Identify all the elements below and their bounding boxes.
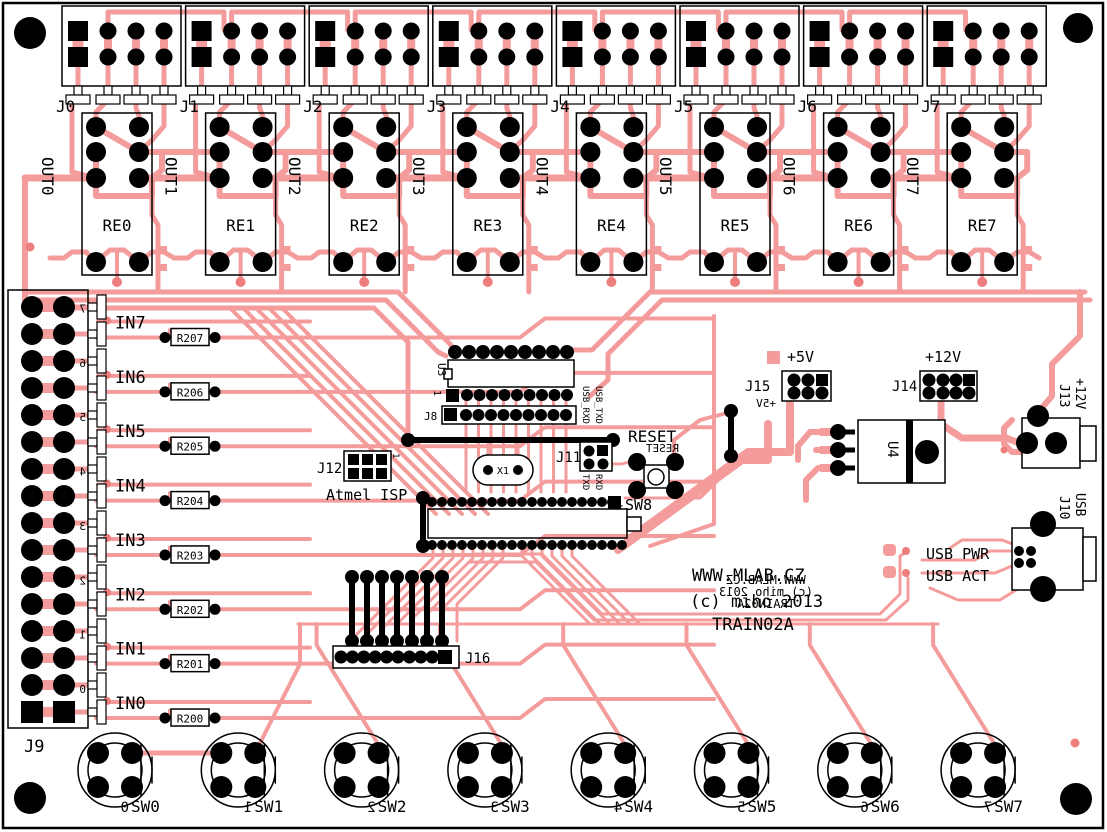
round-pad	[223, 23, 240, 40]
terminal-symbol	[97, 511, 106, 535]
switch-digit-mirrored: 6	[860, 800, 868, 816]
terminal-symbol	[124, 95, 148, 104]
resistor-label: R203	[177, 549, 204, 562]
terminal-symbol	[531, 86, 539, 95]
terminal-symbol	[97, 700, 106, 724]
j9-pad	[21, 323, 43, 345]
terminal-symbol	[495, 95, 519, 104]
square-pad	[68, 21, 88, 41]
resistor-pad	[160, 386, 171, 397]
terminal-symbol	[846, 86, 854, 95]
j10-shell-pad	[1030, 576, 1056, 602]
round-pad	[347, 49, 364, 66]
terminal-symbol	[997, 86, 1005, 95]
j13-pad	[1045, 432, 1067, 454]
socket-pad	[467, 497, 477, 507]
square-pad	[562, 21, 582, 41]
u3-top-pad	[448, 345, 462, 359]
input-label: IN0	[115, 694, 146, 714]
terminal-symbol	[523, 95, 547, 104]
j-connector-label: J7	[921, 97, 940, 116]
j10-pad	[1014, 558, 1024, 568]
terminal-symbol	[132, 86, 140, 95]
round-pad	[965, 49, 982, 66]
terminal-symbol	[248, 95, 272, 104]
terminal-symbol	[256, 86, 264, 95]
rxd-label: RXD	[593, 474, 603, 490]
terminal-symbol	[160, 86, 168, 95]
j-connector-label: J5	[674, 97, 693, 116]
relay-pad	[623, 117, 643, 137]
socket-pad	[577, 497, 587, 507]
terminal-symbol	[88, 573, 97, 581]
j9-pad	[21, 566, 43, 588]
terminal-symbol	[152, 95, 176, 104]
j14-pad	[937, 387, 950, 400]
j14-pad	[963, 387, 976, 400]
u4-pad	[830, 460, 846, 476]
u4-pad	[830, 442, 846, 458]
j16-pad	[335, 651, 348, 664]
round-pad	[526, 49, 543, 66]
square-pad	[315, 47, 335, 67]
terminal-symbol	[770, 95, 794, 104]
round-pad	[622, 23, 639, 40]
relay-pad	[951, 168, 971, 188]
relay-pad	[86, 142, 106, 162]
switch-label: SW4	[624, 797, 653, 816]
terminal-symbol	[88, 465, 97, 473]
copper-trace	[399, 196, 405, 292]
socket-pad	[487, 497, 497, 507]
terminal-symbol	[379, 86, 387, 95]
j-connector-label: J3	[427, 97, 446, 116]
terminal-symbol	[969, 86, 977, 95]
relay-label: RE0	[103, 216, 132, 235]
titleblock-url: WWW.MLAB.CZ	[692, 566, 805, 586]
relay-pad	[210, 117, 230, 137]
x1-label: X1	[497, 466, 509, 477]
relay-pad	[333, 168, 353, 188]
relay-pad	[994, 142, 1014, 162]
terminal-symbol	[220, 95, 244, 104]
terminal-symbol	[97, 646, 106, 670]
wire-link-pad	[401, 433, 415, 447]
relay-pad	[828, 252, 848, 272]
j-connector-label: J0	[56, 97, 75, 116]
resistor-pad	[160, 441, 171, 452]
j8-pad	[473, 409, 485, 421]
round-pad	[347, 23, 364, 40]
relay-pad	[623, 142, 643, 162]
j15-pad	[816, 387, 829, 400]
terminal-symbol	[97, 457, 106, 481]
socket-pad	[567, 540, 577, 550]
relay-pad	[333, 142, 353, 162]
socket-pad	[607, 540, 617, 550]
resistor-label: R202	[177, 604, 204, 617]
smd-pad	[281, 264, 291, 271]
terminal-symbol	[321, 86, 329, 95]
square-pad	[439, 21, 459, 41]
u3-pin-pad	[524, 389, 536, 401]
relay-pad	[129, 168, 149, 188]
reset-pad	[666, 453, 684, 471]
j16-pad	[414, 651, 427, 664]
j10-pad	[1014, 546, 1024, 556]
terminal-symbol	[97, 295, 106, 319]
j9-pad	[21, 674, 43, 696]
terminal-symbol	[88, 330, 97, 338]
crystal-pad	[483, 465, 493, 475]
terminal-symbol	[902, 86, 910, 95]
socket-pad	[427, 540, 437, 550]
round-pad	[470, 23, 487, 40]
relay-pad	[253, 117, 273, 137]
j-connector-label: J1	[180, 97, 199, 116]
terminal-symbol	[228, 86, 236, 95]
relay-pad	[210, 168, 230, 188]
terminal-symbol	[503, 86, 511, 95]
resistor-pad	[210, 495, 221, 506]
relay-pad	[704, 142, 724, 162]
terminal-symbol	[88, 411, 97, 419]
j13-rail-label: +12V	[1072, 378, 1087, 409]
terminal-symbol	[778, 86, 786, 95]
input-label: IN4	[115, 477, 146, 497]
copper-trace	[674, 412, 731, 461]
via	[236, 277, 246, 287]
mounting-hole	[14, 17, 46, 49]
relay-label: RE3	[473, 216, 502, 235]
u4-pad	[830, 424, 846, 440]
input-label: IN2	[115, 585, 146, 605]
round-pad	[594, 23, 611, 40]
smd-pad	[157, 264, 167, 271]
j9-pad	[53, 404, 75, 426]
round-pad	[746, 23, 763, 40]
resistor-label: R205	[177, 441, 204, 454]
resistor-pad	[160, 713, 171, 724]
relay-pad	[951, 142, 971, 162]
u3-pin-pad	[511, 389, 523, 401]
j-connector-label: J6	[798, 97, 817, 116]
round-pad	[526, 23, 543, 40]
j8-pad	[548, 409, 560, 421]
j9-pad	[53, 593, 75, 615]
mounting-hole	[1063, 13, 1093, 43]
j10-shell-pad	[1030, 511, 1056, 537]
square-pad	[686, 47, 706, 67]
round-pad	[965, 23, 982, 40]
round-pad	[251, 23, 268, 40]
socket-pad	[437, 540, 447, 550]
copper-trace	[367, 550, 443, 641]
switch-label: SW5	[748, 797, 777, 816]
terminal-symbol	[692, 86, 700, 95]
relay-pad	[828, 117, 848, 137]
switch-digit-mirrored: 3	[490, 800, 498, 816]
resistor-pad	[210, 658, 221, 669]
square-pad	[53, 701, 75, 723]
socket-pad	[507, 497, 517, 507]
j13-pad	[1027, 405, 1049, 427]
round-pad	[897, 23, 914, 40]
j9-pad	[21, 512, 43, 534]
j14-pad	[923, 374, 936, 387]
copper-trace	[258, 624, 300, 753]
switch-inner-outline	[828, 743, 882, 797]
j8-pad	[460, 409, 472, 421]
j11-pad	[598, 459, 609, 470]
terminal-symbol	[866, 95, 890, 104]
square-pad	[562, 47, 582, 67]
terminal-symbol	[475, 86, 483, 95]
terminal-symbol	[88, 519, 97, 527]
round-pad	[869, 49, 886, 66]
channel-digit-mirrored: 2	[79, 574, 86, 587]
terminal-symbol	[646, 95, 670, 104]
copper-trace	[1017, 196, 1023, 292]
square-pad	[810, 21, 830, 41]
j9-pad	[53, 512, 75, 534]
j12-pad	[348, 454, 359, 465]
u3-pin-pad	[499, 389, 511, 401]
terminal-symbol	[88, 492, 97, 500]
terminal-symbol	[714, 95, 738, 104]
relay-pad	[376, 117, 396, 137]
switch-label: SW3	[501, 797, 530, 816]
resistor-label: R201	[177, 658, 204, 671]
copper-trace	[152, 196, 158, 292]
j16-label: J16	[465, 651, 490, 667]
u3-pin-pad	[561, 389, 573, 401]
resistor-pad	[160, 658, 171, 669]
smd-pad	[651, 264, 661, 271]
relay-pad	[86, 168, 106, 188]
smd-pad	[528, 246, 538, 253]
j15-pad	[788, 387, 801, 400]
switch-digit-mirrored: 1	[244, 800, 252, 816]
socket-pad	[527, 540, 537, 550]
j8-pad	[498, 409, 510, 421]
terminal-symbol	[407, 86, 415, 95]
terminal-symbol	[96, 95, 120, 104]
switch-inner-outline	[211, 743, 265, 797]
input-label: IN5	[115, 422, 146, 442]
square-pad	[439, 47, 459, 67]
channel-digit-mirrored: 4	[79, 466, 86, 479]
relay-pad	[457, 168, 477, 188]
relay-pad	[580, 142, 600, 162]
relay-pad	[129, 142, 149, 162]
relay-pad	[704, 252, 724, 272]
relay-pad	[457, 142, 477, 162]
relay-pad	[500, 142, 520, 162]
terminal-symbol	[88, 303, 97, 311]
square-pad	[438, 650, 452, 664]
terminal-symbol	[284, 86, 292, 95]
socket-pad	[457, 497, 467, 507]
terminal-symbol	[88, 546, 97, 554]
relay-label: RE1	[226, 216, 255, 235]
j16-pad	[403, 651, 416, 664]
j9-pad	[21, 377, 43, 399]
j16-pad	[346, 651, 359, 664]
out-label: OUT7	[903, 157, 922, 196]
terminal-symbol	[97, 592, 106, 616]
u3-top-pad	[532, 345, 546, 359]
relay-pad	[86, 252, 106, 272]
smd-pad	[281, 246, 291, 253]
j16-pad	[380, 651, 393, 664]
channel-digit-mirrored: 5	[79, 411, 86, 424]
input-label: IN3	[115, 531, 146, 551]
switch-inner-outline	[705, 743, 759, 797]
relay-pad	[333, 252, 353, 272]
copper-trace	[590, 300, 1090, 396]
socket-pad	[597, 497, 607, 507]
square-pad	[963, 374, 975, 386]
via	[1071, 739, 1080, 748]
terminal-symbol	[626, 86, 634, 95]
out-label: OUT0	[38, 157, 57, 196]
round-pad	[746, 49, 763, 66]
relay-pad	[747, 168, 767, 188]
terminal-symbol	[445, 86, 453, 95]
smd-pad	[404, 246, 414, 253]
socket-pad	[497, 540, 507, 550]
reset-pad	[666, 481, 684, 499]
j15-label: J15	[745, 379, 770, 395]
plus5v-pad	[767, 351, 780, 364]
resistor-pad	[210, 386, 221, 397]
socket-pad	[457, 540, 467, 550]
resistor-label: R206	[177, 386, 204, 399]
smd-pad	[157, 246, 167, 253]
switch-label: SW2	[378, 797, 407, 816]
socket-pad	[547, 497, 557, 507]
resistor-pad	[160, 549, 171, 560]
sw8-label: -SW8	[616, 496, 652, 514]
wire-link-pad	[420, 570, 434, 584]
round-pad	[100, 23, 117, 40]
resistor-pad	[210, 713, 221, 724]
square-pad	[446, 389, 459, 402]
smd-pad	[1022, 264, 1032, 271]
relay-pad	[253, 142, 273, 162]
relay-pad	[210, 142, 230, 162]
terminal-symbol	[961, 95, 985, 104]
terminal-symbol	[88, 357, 97, 365]
square-pad	[686, 21, 706, 41]
socket-pad	[567, 497, 577, 507]
wire-link-pad	[390, 570, 404, 584]
square-pad	[810, 47, 830, 67]
terminal-symbol	[97, 349, 106, 373]
pcb-viewport: 7654321001234567WWW.MLAB.CZ(c) miho 2013…	[0, 0, 1107, 832]
socket-pad	[557, 497, 567, 507]
channel-digit-mirrored: 0	[79, 683, 86, 696]
relay-pad	[376, 252, 396, 272]
u3-body	[448, 360, 574, 387]
relay-pad	[747, 142, 767, 162]
terminal-symbol	[97, 565, 106, 589]
terminal-symbol	[742, 95, 766, 104]
copper-trace	[930, 588, 1016, 600]
j9-pad	[53, 647, 75, 669]
square-pad	[597, 445, 608, 456]
j12-pad	[376, 468, 387, 479]
j9-pad	[53, 296, 75, 318]
round-pad	[993, 49, 1010, 66]
round-pad	[650, 23, 667, 40]
relay-label: RE6	[844, 216, 873, 235]
terminal-symbol	[343, 95, 367, 104]
input-label: IN6	[115, 368, 146, 388]
terminal-symbol	[276, 95, 300, 104]
resistor-pad	[160, 604, 171, 615]
round-pad	[375, 49, 392, 66]
via	[977, 277, 987, 287]
u3-pin-pad	[486, 389, 498, 401]
j8-pad	[560, 409, 572, 421]
u3-top-pad	[476, 345, 490, 359]
round-pad	[622, 49, 639, 66]
terminal-symbol	[1017, 95, 1041, 104]
titleblock-copyright: (c) miho 2013	[690, 592, 823, 612]
relay-pad	[994, 168, 1014, 188]
u3-pin-pad	[461, 389, 473, 401]
mcu-socket-body	[428, 509, 627, 538]
j9-pad	[21, 350, 43, 372]
wire-link-pad	[435, 570, 449, 584]
square-pad	[21, 701, 43, 723]
j9-label: J9	[24, 737, 44, 757]
j10-usb-label: USB	[1072, 493, 1087, 517]
via	[730, 277, 740, 287]
round-pad	[993, 23, 1010, 40]
wire-link-pad	[405, 570, 419, 584]
j9-pad	[53, 323, 75, 345]
u3-pin-pad	[549, 389, 561, 401]
u3-top-pad	[560, 345, 574, 359]
relay-pad	[747, 252, 767, 272]
reset-button-plunger	[648, 469, 664, 485]
via	[902, 547, 910, 555]
terminal-symbol	[939, 86, 947, 95]
square-pad	[816, 374, 828, 386]
terminal-symbol	[838, 95, 862, 104]
round-pad	[774, 49, 791, 66]
relay-pad	[210, 252, 230, 272]
j16-pad	[392, 651, 405, 664]
terminal-symbol	[97, 484, 106, 508]
round-pad	[279, 23, 296, 40]
via	[1001, 447, 1008, 454]
j14-pad	[950, 374, 963, 387]
switch-inner-outline	[951, 743, 1005, 797]
copper-trace	[276, 196, 282, 292]
channel-digit-mirrored: 3	[79, 520, 86, 533]
socket-pad	[547, 540, 557, 550]
u3-top-pad	[518, 345, 532, 359]
square-pad	[192, 47, 212, 67]
switch-digit-mirrored: 7	[984, 800, 992, 816]
terminal-symbol	[1025, 86, 1033, 95]
titleblock-name: TRAIN02A	[712, 615, 794, 635]
smd-pad	[775, 246, 785, 253]
